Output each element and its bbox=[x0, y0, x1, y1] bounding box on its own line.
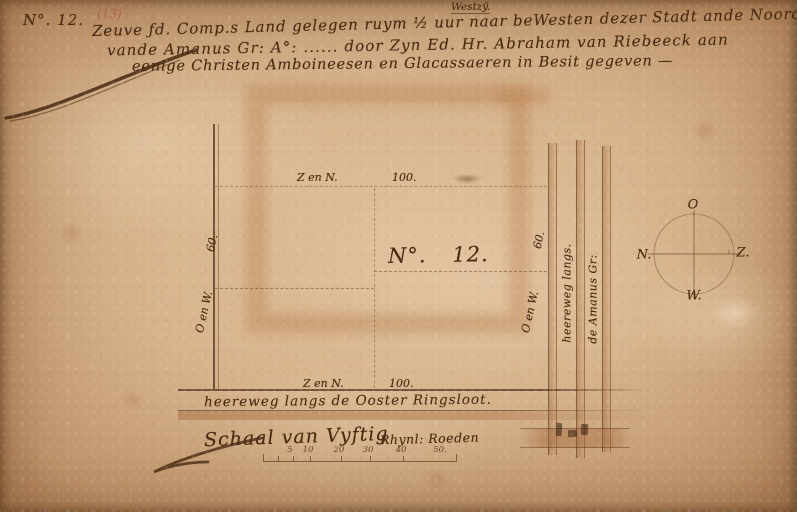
plot-bottom-side-label: Z en N. bbox=[303, 377, 344, 390]
road-vertical-line-1 bbox=[548, 143, 557, 455]
scale-bar: 5 10 20 30 40 50. bbox=[263, 446, 457, 464]
foxing-spot-4 bbox=[420, 470, 454, 488]
plot-top-side-label: Z en N. bbox=[297, 171, 338, 184]
bridge-mark-1 bbox=[556, 423, 563, 436]
scale-tick-40: 40 bbox=[396, 445, 407, 455]
plot-left-side-label: O en W. bbox=[193, 290, 215, 334]
sheet-number-alt: (13) bbox=[97, 7, 122, 21]
plot-divider-vertical bbox=[374, 188, 375, 388]
scale-tick-20: 20 bbox=[334, 445, 345, 455]
ink-stain bbox=[452, 174, 482, 184]
foxing-spot-1 bbox=[120, 390, 146, 410]
plot-bottom-length-label: 100. bbox=[389, 377, 414, 390]
plot-boundary-top-dotted bbox=[215, 186, 547, 187]
ink-bleed-square bbox=[246, 84, 530, 334]
road-horizontal-wash bbox=[178, 411, 646, 420]
road-vertical-line-3 bbox=[602, 146, 611, 452]
plot-right-length-label: 60. bbox=[531, 230, 548, 250]
scale-tick-5: 5 bbox=[287, 445, 292, 455]
compass-east-label: O bbox=[688, 198, 699, 213]
plot-divider-horizontal-right bbox=[374, 271, 547, 272]
plot-top-length-label: 100. bbox=[392, 171, 417, 184]
road-vertical-label-2: de Amanus Gr: bbox=[587, 254, 600, 344]
compass-west-label: W. bbox=[686, 289, 701, 304]
compass-north-label: N. bbox=[637, 248, 652, 263]
light-patch bbox=[712, 296, 760, 330]
road-horizontal-label: heereweg langs de Ooster Ringsloot. bbox=[204, 392, 492, 411]
foxing-spot-2 bbox=[690, 120, 720, 142]
compass-south-label: Z. bbox=[737, 246, 750, 261]
foxing-spot-3 bbox=[60, 220, 84, 246]
map-sheet: N°. 12. (13) Zeuve ƒd. Comp.s Land geleg… bbox=[0, 0, 797, 512]
ink-bleed-streak bbox=[498, 88, 550, 105]
plot-divider-horizontal-left bbox=[215, 288, 374, 289]
bridge-mark-2 bbox=[568, 430, 577, 437]
scale-tick-10: 10 bbox=[303, 445, 314, 455]
bridge-mark-3 bbox=[581, 424, 589, 435]
scale-tick-30: 30 bbox=[363, 445, 374, 455]
road-vertical-label-1: heereweg langs. bbox=[561, 243, 574, 342]
pen-flourish-header bbox=[0, 22, 210, 122]
plot-boundary-left bbox=[213, 124, 219, 389]
plot-number-label: N°. 12. bbox=[388, 242, 489, 268]
scale-tick-50: 50. bbox=[433, 445, 447, 455]
title-insertion: Westzÿ. bbox=[451, 1, 490, 14]
